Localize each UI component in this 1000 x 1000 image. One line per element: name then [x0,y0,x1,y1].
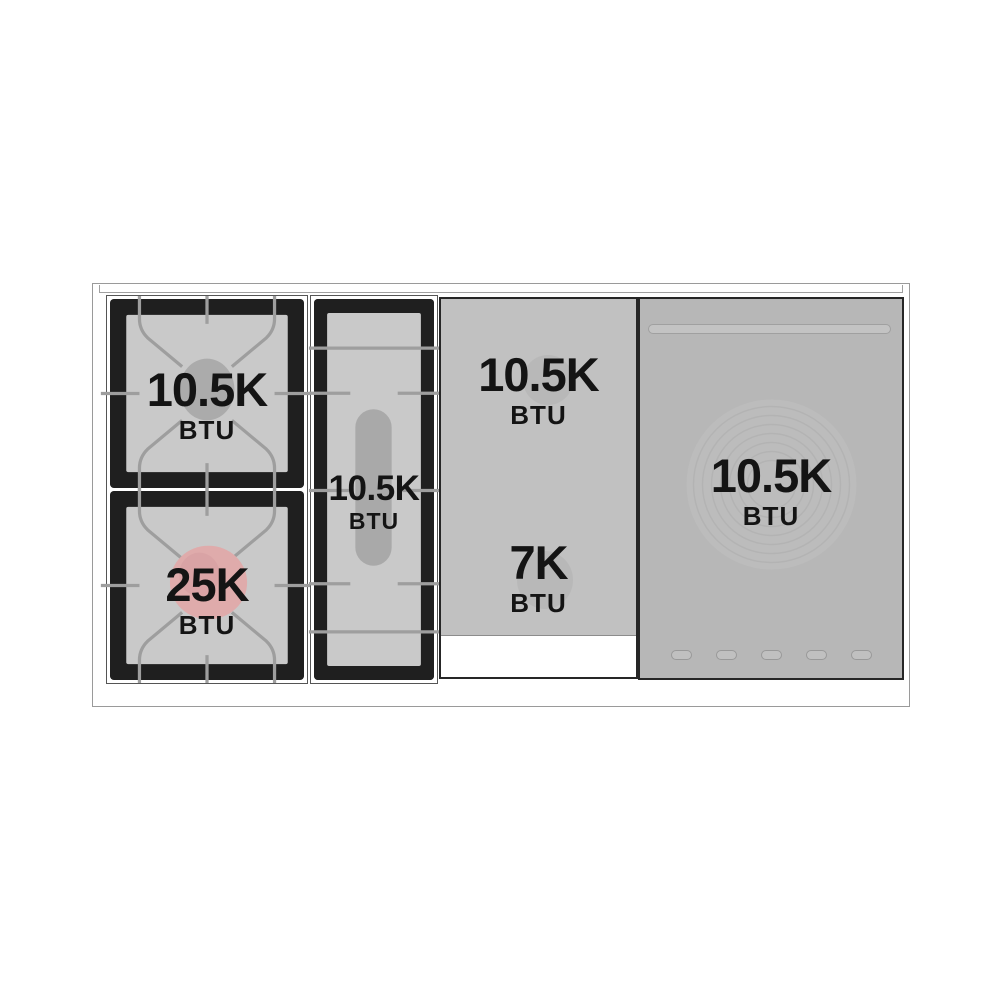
burner-rating-label: 10.5K BTU [314,471,434,533]
handle-bar [648,324,891,334]
burner-rating-label: 25K BTU [110,561,304,638]
griddle-plate: 10.5K BTU 7K BTU [441,299,636,635]
frame-seam-line [99,292,903,293]
vent-slot-icon [851,650,872,660]
btu-unit: BTU [110,612,304,638]
burner-rating-label: 10.5K BTU [441,351,636,428]
center-oval-section: 10.5K BTU [310,295,438,684]
griddle-drip-tray [441,635,636,677]
left-rear-burner: 10.5K BTU [110,299,304,488]
btu-value: 10.5K [314,471,434,506]
btu-value: 10.5K [110,366,304,413]
vent-slot-row [640,650,902,660]
btu-value: 10.5K [640,452,902,499]
btu-value: 7K [441,539,636,586]
vent-slot-icon [761,650,782,660]
vent-slot-icon [671,650,692,660]
btu-unit: BTU [640,503,902,529]
vent-slot-icon [716,650,737,660]
btu-value: 10.5K [441,351,636,398]
frame-seam-end-right [902,285,903,293]
btu-unit: BTU [314,510,434,533]
btu-unit: BTU [441,402,636,428]
vent-slot-icon [806,650,827,660]
left-front-burner: 25K BTU [110,491,304,680]
burner-rating-label: 10.5K BTU [110,366,304,443]
left-burner-section: 10.5K BTU [106,295,308,684]
burner-rating-label: 10.5K BTU [640,452,902,529]
btu-unit: BTU [441,590,636,616]
center-oval-burner: 10.5K BTU [314,299,434,680]
right-plate-section: 10.5K BTU [638,297,904,680]
griddle-section: 10.5K BTU 7K BTU [439,297,638,679]
burner-rating-label: 7K BTU [441,539,636,616]
btu-value: 25K [110,561,304,608]
btu-unit: BTU [110,417,304,443]
frame-seam-end-left [99,285,100,293]
cooktop-frame: 10.5K BTU [92,283,910,707]
rangetop-diagram: 10.5K BTU [0,0,1000,1000]
